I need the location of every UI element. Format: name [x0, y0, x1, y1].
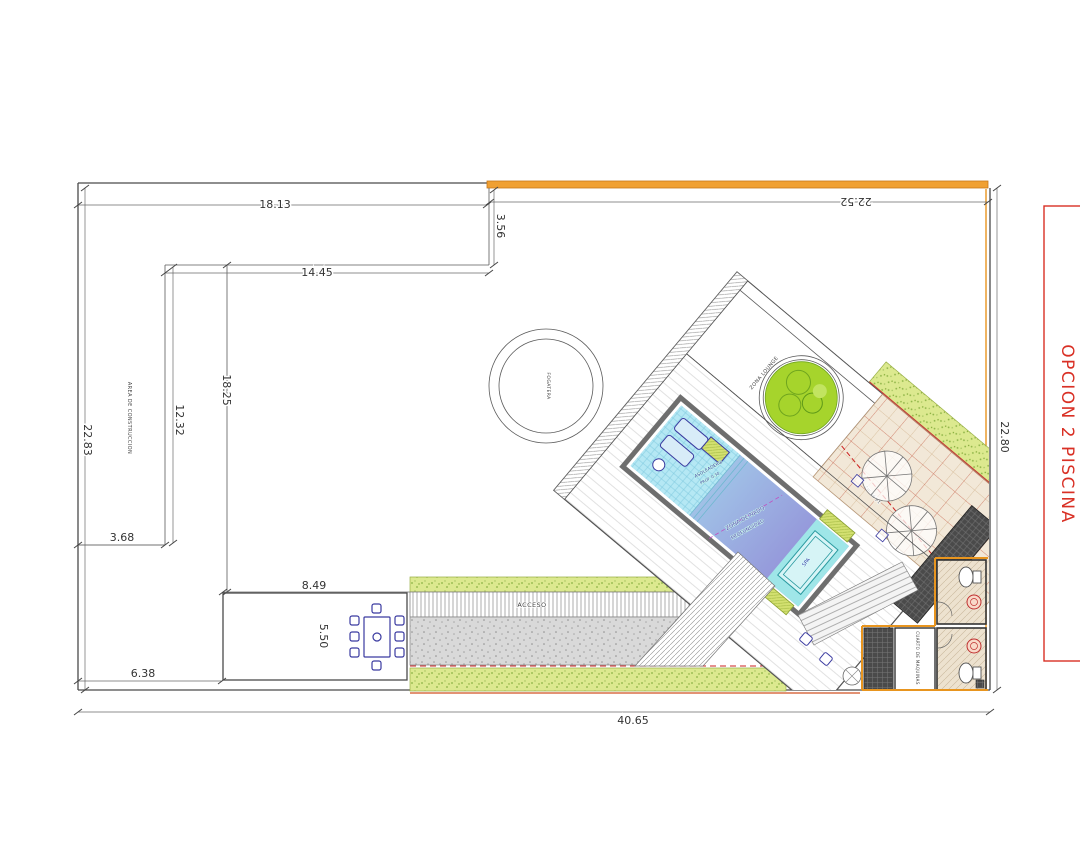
dim-total-width: 40.65: [617, 714, 649, 727]
fire-pit-label: FOGATERA: [545, 372, 551, 400]
sink-icon: [967, 639, 981, 653]
machine-room: CUARTO DE MAQUINAS: [895, 628, 935, 690]
dim-left-height: 22.83: [81, 424, 94, 456]
dim-bottom-left-width: 6.38: [131, 667, 156, 680]
dim-top-right-width: 22.52: [840, 195, 872, 208]
toilet-icon: [959, 663, 973, 683]
access-path: [410, 592, 702, 617]
dim-left-inner-height: 12.32: [173, 404, 186, 436]
bathroom-top: [937, 560, 986, 624]
machine-room-label: CUARTO DE MAQUINAS: [915, 631, 920, 685]
bathroom-bottom: [937, 628, 986, 690]
sink-icon: [967, 595, 981, 609]
dim-inner-width: 14.45: [301, 266, 333, 279]
dim-top-width: 18.13: [259, 198, 291, 211]
equipment-block: [864, 628, 893, 690]
dining-table-set: [350, 604, 404, 670]
title-block: OPCION 2 PISCINA: [1044, 206, 1080, 661]
dining-room: [223, 593, 407, 680]
dim-right-height: 22.80: [998, 421, 1011, 453]
north-wall-orange: [487, 181, 988, 188]
toilet-icon: [959, 567, 973, 587]
fire-pit: FOGATERA: [489, 329, 603, 443]
pebble-path: [410, 617, 679, 665]
dim-left-inset: 3.68: [110, 531, 135, 544]
option-title: OPCION 2 PISCINA: [1057, 344, 1077, 524]
site-plan-canvas: AREA DE CONSTRUCCION 18.13 22.52 3.56 14…: [0, 0, 1080, 864]
dim-top-inset: 3.56: [494, 214, 507, 239]
access-label: ACCESO: [517, 601, 546, 609]
construction-area-label: AREA DE CONSTRUCCION: [126, 382, 132, 454]
dim-dining-depth: 5.50: [317, 624, 330, 649]
dim-construction-height: 18.25: [220, 374, 233, 406]
dim-dining-width: 8.49: [302, 579, 327, 592]
construction-area-outline: AREA DE CONSTRUCCION: [78, 188, 489, 592]
grass-strip-bottom: [410, 668, 786, 691]
